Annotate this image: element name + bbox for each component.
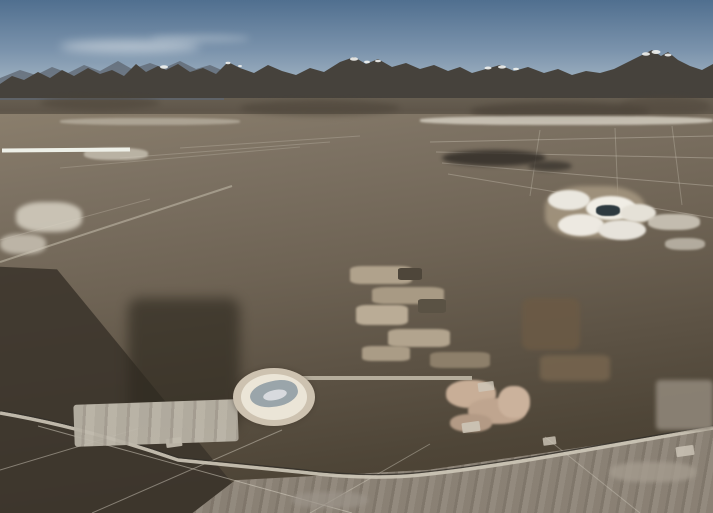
- right-lower-yellow: [598, 347, 708, 357]
- back-pond-row-3: [458, 175, 620, 178]
- right-yellow-block: [492, 247, 709, 266]
- right-green-strip: [568, 338, 694, 347]
- processing-pad: [73, 399, 238, 447]
- right-teal-ponds: [575, 231, 707, 238]
- back-pond-row-2: [250, 166, 460, 171]
- spiral-salt-mound: [233, 368, 315, 426]
- left-green-yellow-block: [82, 294, 330, 298]
- main-teal-pond-block: [58, 181, 613, 193]
- far-right-pale-ponds: [688, 260, 713, 261]
- center-bottom-pond-block: [300, 376, 472, 380]
- green-pond-rows: [52, 257, 448, 264]
- aerial-lithium-ponds-photo: [0, 0, 713, 513]
- back-pond-row-1: [72, 162, 262, 167]
- distant-pale-pond-strip: [2, 147, 130, 152]
